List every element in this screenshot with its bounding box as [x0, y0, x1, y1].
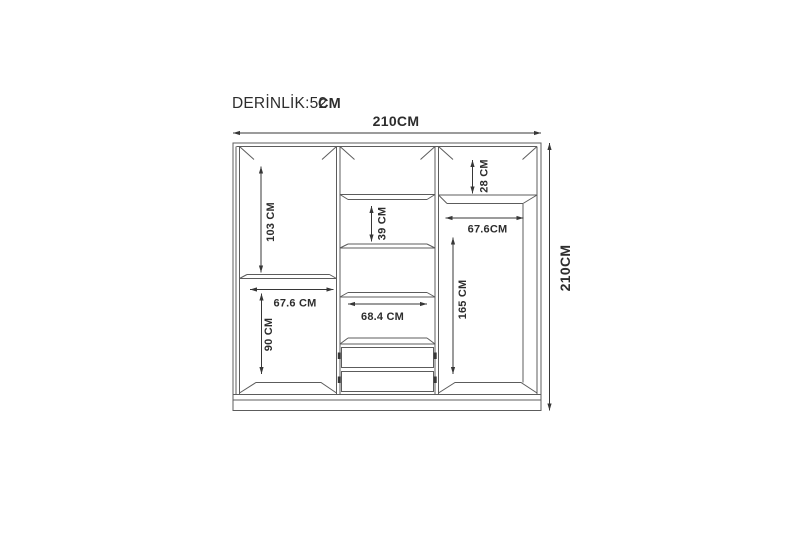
dim-label-middle-width: 68.4 CM	[361, 311, 404, 323]
dim-label-right-height: 165 CM	[457, 280, 469, 320]
shelf-left	[240, 275, 337, 279]
shelf-middle-4	[340, 338, 435, 344]
drawer-slide-mark	[434, 353, 437, 360]
dim-label-left-upper-height: 103 CM	[265, 202, 277, 242]
cabinet-frame	[233, 143, 541, 411]
dim-middle-shelf-gap: 39 CM	[372, 206, 389, 242]
dim-label-left-lower-width: 67.6 CM	[274, 298, 317, 310]
dim-right-top-shelf: 28 CM	[473, 159, 491, 193]
shelf-middle-1	[340, 195, 435, 200]
drawers	[338, 348, 437, 392]
dim-right-width: 67.6CM	[446, 218, 524, 236]
dim-label-right-width: 67.6CM	[468, 224, 508, 236]
dim-right-height: 165 CM	[453, 238, 469, 375]
dim-middle-width: 68.4 CM	[348, 304, 427, 323]
depth-note: DERİNLİK:52 CM	[232, 94, 341, 112]
drawer-slide-mark	[338, 353, 341, 360]
drawer-front-lower	[342, 372, 434, 392]
dim-overall-width: 210CM	[233, 113, 541, 133]
wardrobe-technical-drawing: DERİNLİK:52 CM 210CM 210CM 103 CM 28 CM …	[0, 0, 800, 533]
dim-overall-height: 210CM	[550, 143, 574, 411]
depth-label: DERİNLİK:52	[232, 94, 327, 112]
depth-unit: CM	[318, 96, 341, 112]
dim-left-lower-width: 67.6 CM	[250, 290, 334, 310]
dim-label-overall-height: 210CM	[557, 245, 573, 292]
drawer-front-upper	[342, 348, 434, 368]
dim-label-middle-shelf-gap: 39 CM	[377, 207, 389, 240]
left-wall-lines	[236, 147, 240, 395]
floor-perspective-left	[240, 383, 337, 394]
dim-left-upper-height: 103 CM	[261, 167, 277, 273]
shelf-middle-2	[340, 244, 435, 248]
dim-label-overall-width: 210CM	[373, 113, 420, 129]
dim-label-left-lower-height: 90 CM	[263, 318, 275, 351]
floor-perspective-right	[439, 383, 538, 394]
shelf-middle-3	[340, 293, 435, 298]
plinth	[233, 395, 541, 401]
diagram-canvas: DERİNLİK:52 CM 210CM 210CM 103 CM 28 CM …	[0, 0, 800, 533]
shelf-right-top	[439, 195, 538, 204]
dim-label-right-top-shelf: 28 CM	[479, 159, 491, 192]
drawer-slide-mark	[338, 377, 341, 384]
top-corner-diagonals	[240, 147, 538, 160]
drawer-slide-mark	[434, 377, 437, 384]
outer-frame	[233, 143, 541, 411]
